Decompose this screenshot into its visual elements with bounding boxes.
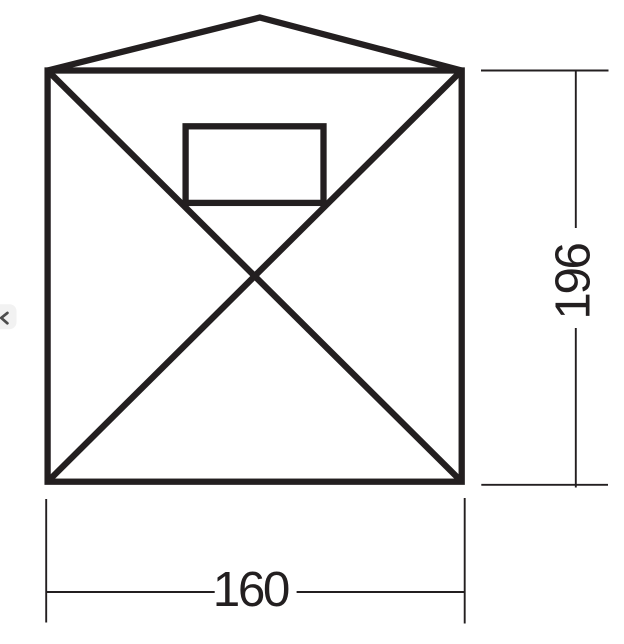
svg-text:196: 196: [546, 243, 601, 319]
svg-text:160: 160: [213, 562, 289, 617]
